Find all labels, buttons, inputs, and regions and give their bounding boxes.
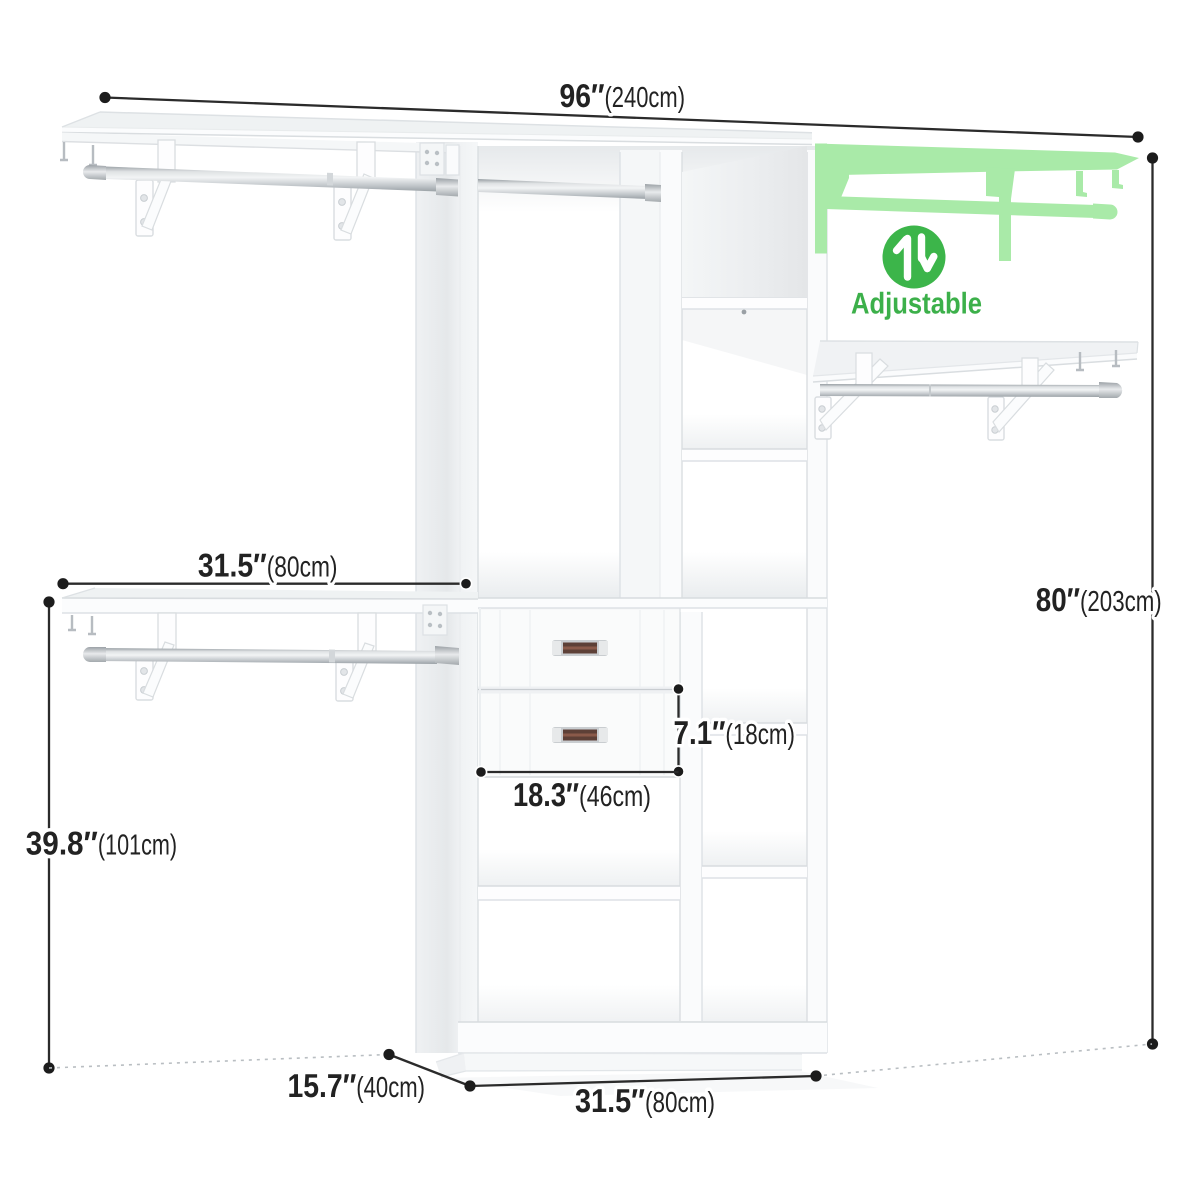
- svg-text:18.3″: 18.3″: [513, 776, 579, 813]
- svg-text:15.7″: 15.7″: [288, 1067, 357, 1104]
- svg-text:(101cm): (101cm): [98, 830, 177, 862]
- svg-text:(80cm): (80cm): [645, 1087, 715, 1119]
- svg-text:(46cm): (46cm): [579, 781, 651, 813]
- svg-text:39.8″: 39.8″: [26, 825, 98, 862]
- svg-text:31.5″: 31.5″: [198, 547, 267, 584]
- svg-text:80″: 80″: [1036, 581, 1080, 618]
- svg-text:(18cm): (18cm): [725, 719, 795, 751]
- svg-text:(240cm): (240cm): [605, 82, 686, 114]
- svg-text:Adjustable: Adjustable: [851, 288, 982, 321]
- svg-text:96″: 96″: [560, 77, 605, 114]
- svg-text:(80cm): (80cm): [267, 552, 338, 584]
- svg-text:(203cm): (203cm): [1080, 586, 1162, 618]
- svg-text:31.5″: 31.5″: [575, 1082, 645, 1119]
- svg-text:7.1″: 7.1″: [674, 714, 726, 751]
- svg-text:(40cm): (40cm): [356, 1072, 425, 1104]
